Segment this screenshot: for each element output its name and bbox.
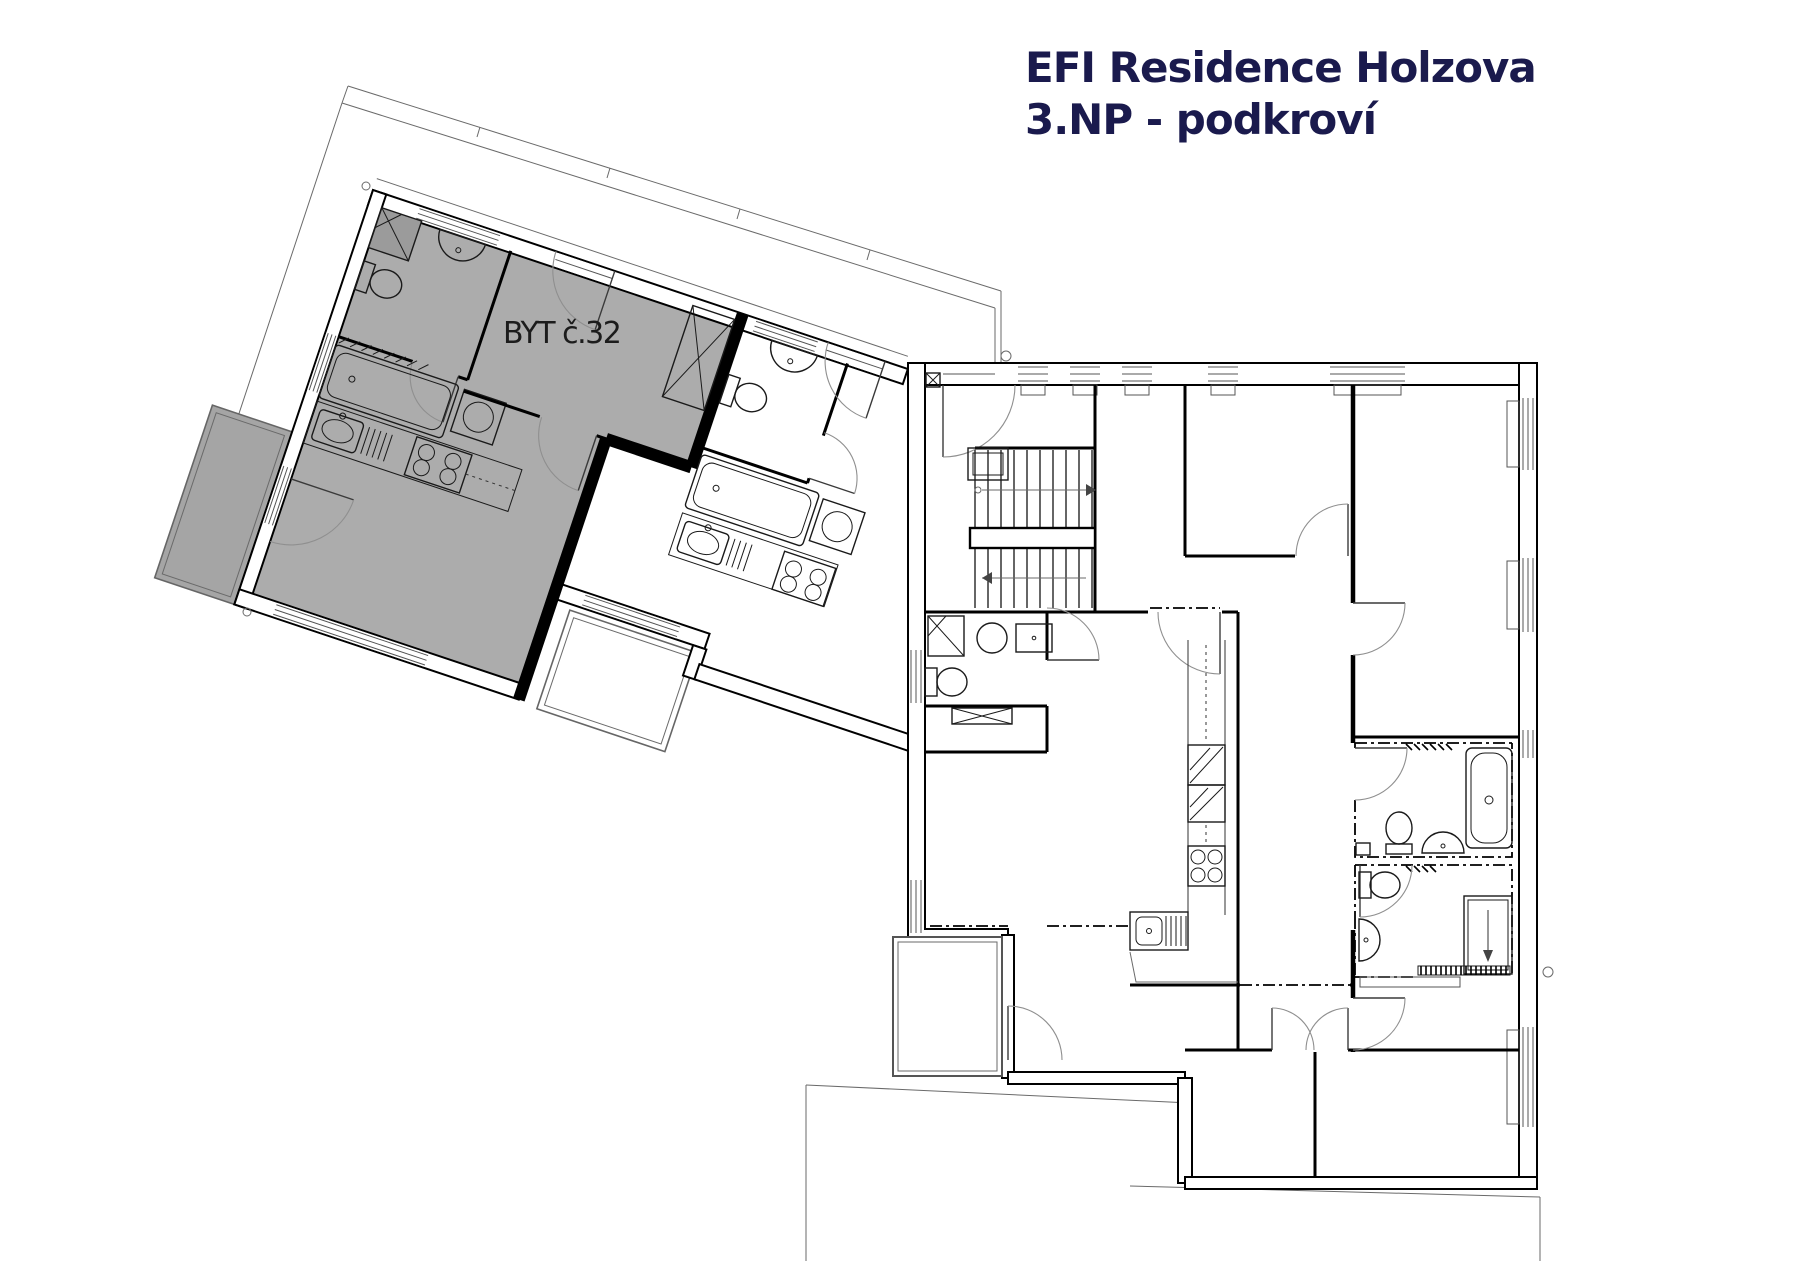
wc-room — [925, 608, 1099, 752]
washing-machine — [809, 499, 865, 555]
toilet-bowl — [731, 379, 770, 416]
balcony-outline — [893, 937, 1002, 1076]
counter-dot — [1032, 636, 1036, 640]
apartment-door-swing — [1158, 612, 1220, 674]
wall-bottom-west — [1008, 1072, 1185, 1084]
bathroom-door-swing — [1360, 865, 1412, 917]
toilet-bowl — [1370, 872, 1400, 898]
wall-bottom-east — [694, 664, 913, 751]
staircase — [968, 385, 1096, 612]
title-line-1: EFI Residence Holzova — [1025, 43, 1536, 92]
double-door-swing-right — [1306, 1008, 1348, 1050]
balcony-door-swing — [1008, 1006, 1062, 1060]
roof-edge-end — [995, 291, 1001, 363]
bathtub-drain — [1485, 796, 1493, 804]
wc-door-swing — [1047, 608, 1099, 660]
double-door-jambs — [1272, 1022, 1348, 1050]
roof-edge-end — [342, 86, 348, 103]
sink-tap — [787, 358, 793, 364]
room-walls — [1185, 385, 1295, 556]
roof-ticks — [477, 127, 870, 260]
door-swing — [1296, 504, 1348, 556]
shower-lines — [928, 616, 964, 656]
window-sill — [1073, 385, 1097, 395]
window-sill — [1507, 1030, 1519, 1124]
washbasin — [977, 623, 1007, 653]
wall-hatch — [1406, 744, 1452, 750]
bedroom-door-swing — [1353, 998, 1405, 1050]
window-sill — [1211, 385, 1235, 395]
floor-plan-page: BYT č.32 — [0, 0, 1793, 1261]
left-wing — [154, 152, 1028, 825]
washing-box-cross — [952, 708, 1012, 724]
title-block: EFI Residence Holzova 3.NP - podkroví — [1025, 43, 1536, 144]
site-boundary-lines — [806, 1085, 1540, 1261]
shower-arrow — [1483, 950, 1493, 962]
room-top-right — [1353, 385, 1519, 743]
bathroom-door-swing — [809, 433, 870, 494]
drainer — [1166, 916, 1186, 946]
door-swing — [1353, 603, 1405, 655]
counter-flare — [1130, 952, 1238, 982]
bathroom-shower — [1355, 865, 1512, 987]
washing-machine-drum — [818, 508, 856, 546]
window-sill — [1507, 561, 1519, 629]
threshold — [1360, 977, 1460, 987]
living-room — [1008, 1006, 1062, 1060]
kitchen-tap — [1147, 929, 1152, 934]
kitchen-sink-bowl — [1136, 917, 1162, 945]
site-line — [806, 1085, 1190, 1103]
window-sill — [1334, 385, 1401, 395]
entrance-door-swing — [943, 385, 1015, 457]
wall-hatch — [1406, 866, 1436, 872]
cabinet-zigzag — [1190, 787, 1223, 820]
stair-arrow-down — [982, 572, 992, 584]
window-sill — [1125, 385, 1149, 395]
sink-tap — [1441, 844, 1445, 848]
corridor — [925, 608, 1238, 926]
wall-bottom — [1185, 1177, 1537, 1189]
stair-start-marker — [975, 487, 981, 493]
right-wing-top-windows — [1018, 364, 1405, 395]
sink — [1359, 919, 1380, 961]
cabinet-zigzag — [1190, 747, 1223, 783]
bathroom-walls — [1355, 743, 1512, 857]
toilet-tank — [1359, 872, 1371, 898]
floor-plan-drawing: BYT č.32 — [0, 0, 1793, 1261]
window-sill — [1507, 401, 1519, 467]
double-door-swing-left — [1272, 1008, 1314, 1050]
toilet-tank — [1386, 844, 1412, 854]
duct-box — [1356, 843, 1370, 855]
unit-32-label: BYT č.32 — [503, 316, 620, 351]
room-top-middle — [1185, 385, 1348, 556]
drainer — [726, 539, 752, 571]
bathtub — [684, 454, 819, 546]
sink — [1422, 832, 1464, 853]
kitchen-sink — [676, 520, 730, 565]
toilet-tank — [925, 668, 937, 696]
title-line-2: 3.NP - podkroví — [1025, 95, 1380, 144]
wall-left — [908, 363, 925, 935]
bathtub — [1466, 748, 1512, 848]
toilet-bowl — [937, 668, 967, 696]
kitchen-sink-bowl — [684, 527, 721, 558]
toilet-bowl — [1386, 812, 1412, 844]
bathtub-drain — [712, 484, 720, 492]
balcony — [893, 937, 1002, 1076]
sink-tap — [1364, 938, 1368, 942]
bathroom-bathtub — [1355, 743, 1512, 857]
stair-landing — [970, 528, 1095, 548]
bathroom-door-swing — [1355, 748, 1407, 800]
counter — [669, 513, 838, 607]
window-sill — [1021, 385, 1045, 395]
wall-step — [1178, 1078, 1192, 1183]
bathtub-inner — [1471, 753, 1507, 843]
balcony-sill — [1360, 966, 1510, 987]
stair-treads-upper — [975, 450, 1092, 528]
